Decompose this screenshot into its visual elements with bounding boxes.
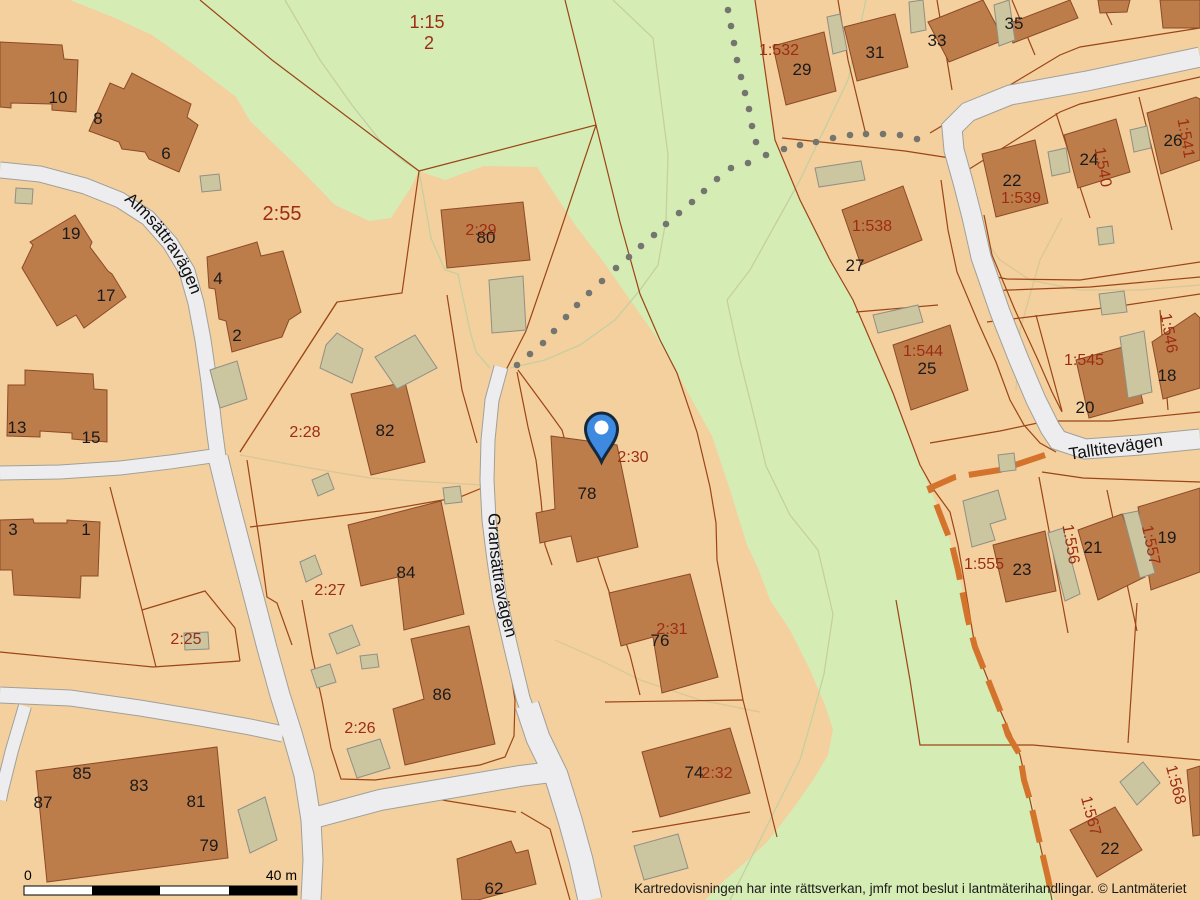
svg-text:2:26: 2:26	[344, 720, 375, 737]
svg-text:8: 8	[93, 109, 102, 128]
svg-text:1:15: 1:15	[409, 12, 444, 32]
svg-text:31: 31	[866, 43, 885, 62]
svg-text:83: 83	[130, 776, 149, 795]
svg-text:1:545: 1:545	[1064, 352, 1104, 369]
svg-text:4: 4	[213, 269, 222, 288]
svg-text:1:538: 1:538	[852, 218, 892, 235]
svg-text:87: 87	[34, 793, 53, 812]
svg-text:2:27: 2:27	[314, 582, 345, 599]
svg-text:2:25: 2:25	[170, 631, 201, 648]
svg-text:23: 23	[1013, 560, 1032, 579]
svg-text:1:532: 1:532	[759, 42, 799, 59]
svg-text:20: 20	[1076, 398, 1095, 417]
svg-text:85: 85	[73, 764, 92, 783]
svg-text:2: 2	[424, 33, 434, 53]
svg-text:2: 2	[232, 326, 241, 345]
svg-text:35: 35	[1005, 14, 1024, 33]
svg-text:19: 19	[62, 224, 81, 243]
svg-text:40 m: 40 m	[266, 867, 297, 883]
svg-text:Kartredovisningen har inte rät: Kartredovisningen har inte rättsverkan, …	[634, 881, 1187, 896]
svg-text:6: 6	[161, 144, 170, 163]
svg-text:22: 22	[1101, 839, 1120, 858]
svg-text:18: 18	[1158, 366, 1177, 385]
svg-text:33: 33	[928, 31, 947, 50]
svg-text:22: 22	[1003, 171, 1022, 190]
svg-text:1:539: 1:539	[1001, 190, 1041, 207]
svg-text:3: 3	[8, 520, 17, 539]
svg-text:82: 82	[376, 421, 395, 440]
svg-text:2:31: 2:31	[656, 621, 687, 638]
svg-text:13: 13	[8, 418, 27, 437]
svg-text:2:55: 2:55	[263, 203, 302, 225]
svg-text:62: 62	[485, 879, 504, 898]
svg-text:2:30: 2:30	[617, 449, 648, 466]
svg-text:21: 21	[1084, 538, 1103, 557]
svg-text:86: 86	[433, 685, 452, 704]
svg-text:2:28: 2:28	[289, 424, 320, 441]
svg-text:27: 27	[846, 256, 865, 275]
svg-text:29: 29	[793, 60, 812, 79]
svg-text:15: 15	[82, 428, 101, 447]
svg-text:1:544: 1:544	[903, 343, 943, 360]
svg-text:84: 84	[397, 563, 416, 582]
svg-text:1: 1	[81, 520, 90, 539]
svg-text:19: 19	[1158, 528, 1177, 547]
svg-text:2:32: 2:32	[701, 765, 732, 782]
svg-text:81: 81	[187, 792, 206, 811]
svg-text:1:555: 1:555	[964, 556, 1004, 573]
svg-text:17: 17	[97, 286, 116, 305]
svg-text:79: 79	[200, 836, 219, 855]
svg-text:25: 25	[918, 359, 937, 378]
svg-text:0: 0	[24, 867, 32, 883]
svg-text:78: 78	[578, 484, 597, 503]
svg-text:2:29: 2:29	[465, 222, 496, 239]
svg-text:10: 10	[49, 88, 68, 107]
